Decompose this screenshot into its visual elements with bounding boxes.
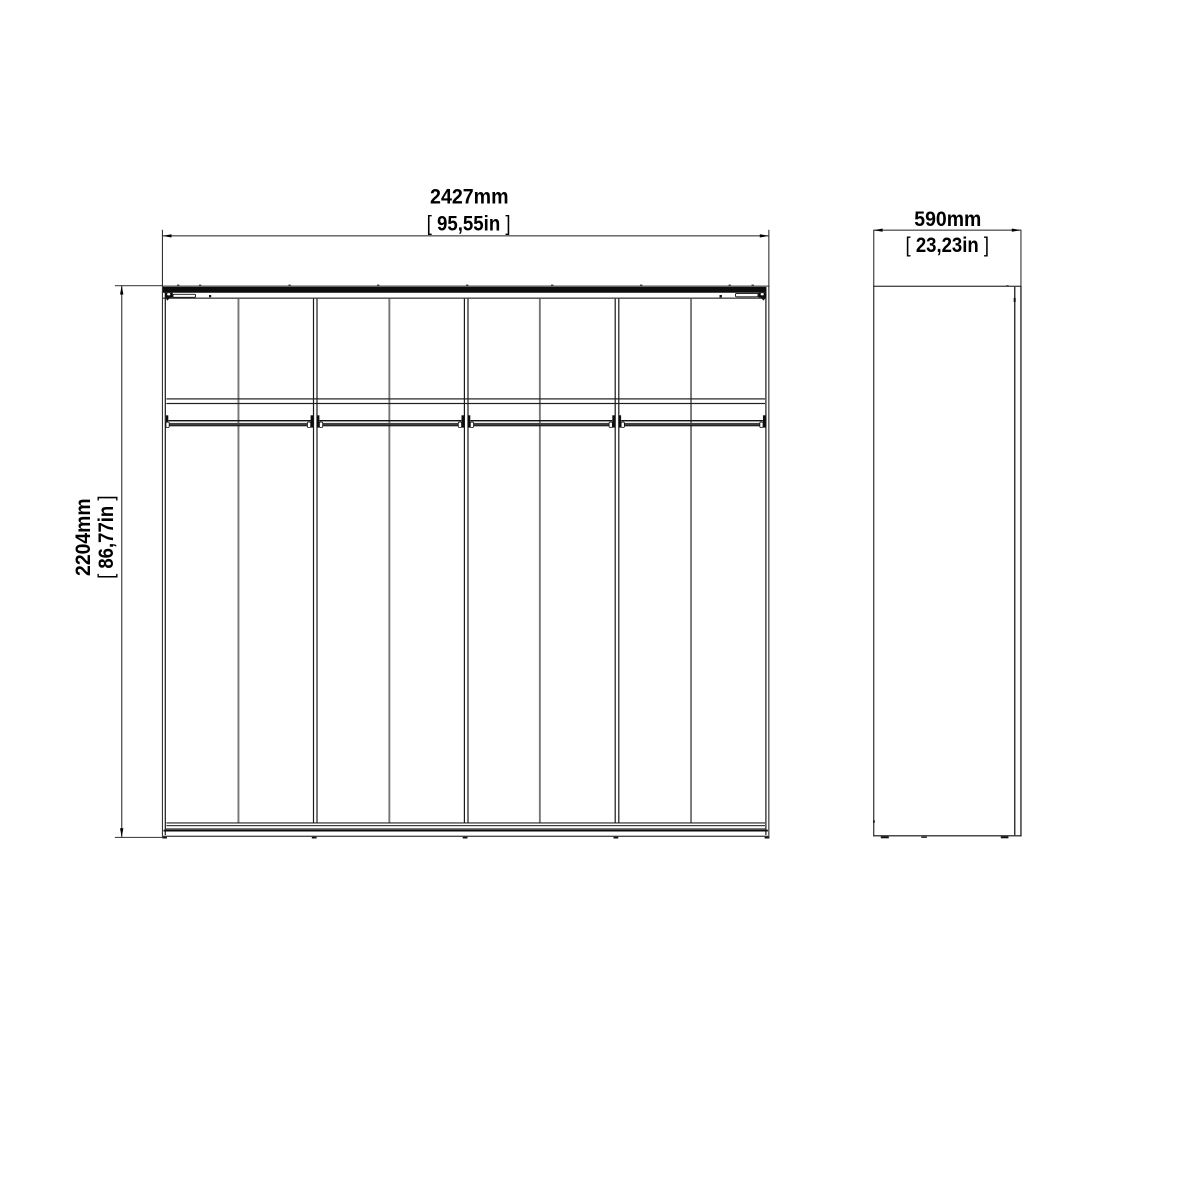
svg-text:[ 95,55in ]: [ 95,55in ] — [427, 211, 511, 235]
svg-text:2427mm: 2427mm — [430, 185, 509, 209]
svg-text:590mm: 590mm — [914, 207, 981, 231]
svg-text:2204mm: 2204mm — [71, 498, 95, 576]
svg-text:[ 23,23in ]: [ 23,23in ] — [906, 233, 990, 257]
svg-text:[ 86,77in ]: [ 86,77in ] — [94, 495, 118, 579]
